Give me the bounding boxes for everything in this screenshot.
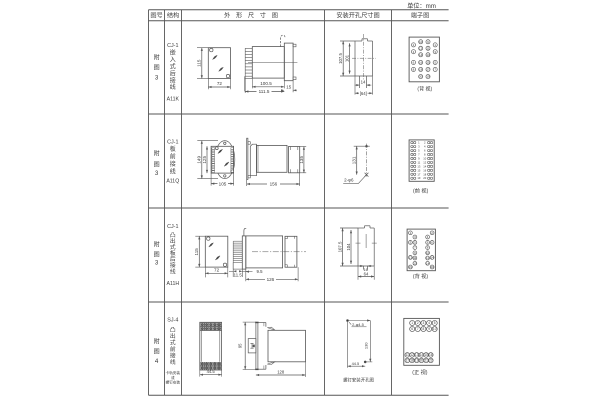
- svg-text:凸: 凸: [170, 232, 176, 239]
- svg-text:接: 接: [170, 352, 176, 360]
- svg-text:115: 115: [197, 59, 202, 67]
- svg-text:单位：mm: 单位：mm: [407, 2, 436, 10]
- svg-text:18: 18: [423, 172, 426, 176]
- svg-text:线: 线: [170, 168, 176, 176]
- svg-text:17: 17: [406, 359, 410, 363]
- svg-text:15: 15: [426, 61, 430, 65]
- svg-text:2-φ6: 2-φ6: [344, 178, 354, 183]
- svg-text:12: 12: [426, 256, 430, 260]
- svg-text:111.5: 111.5: [259, 89, 270, 94]
- svg-text:13: 13: [413, 261, 417, 265]
- svg-text:107.5: 107.5: [338, 241, 343, 252]
- svg-text:9: 9: [428, 327, 430, 331]
- svg-text:72: 72: [217, 81, 223, 86]
- svg-text:18: 18: [419, 68, 423, 72]
- svg-text:10: 10: [419, 40, 423, 44]
- svg-text:126: 126: [267, 277, 275, 282]
- svg-text:20: 20: [430, 265, 434, 269]
- svg-text:螺钉安装开孔图: 螺钉安装开孔图: [343, 377, 374, 384]
- svg-text:附: 附: [154, 150, 160, 158]
- svg-text:16: 16: [429, 353, 433, 357]
- svg-text:入: 入: [170, 57, 176, 64]
- svg-text:19: 19: [409, 265, 413, 269]
- svg-text:(背 视): (背 视): [417, 86, 432, 93]
- svg-text:135: 135: [299, 156, 304, 164]
- svg-text:64: 64: [364, 272, 369, 277]
- svg-text:13: 13: [426, 53, 430, 57]
- svg-text:线: 线: [170, 83, 176, 91]
- svg-text:线: 线: [170, 267, 176, 275]
- svg-text:4: 4: [155, 358, 159, 365]
- svg-text:附: 附: [154, 54, 160, 62]
- svg-text:13: 13: [409, 255, 413, 259]
- svg-text:104: 104: [346, 243, 351, 251]
- svg-text:10: 10: [423, 156, 426, 160]
- svg-text:21: 21: [424, 359, 428, 363]
- svg-text:2: 2: [417, 321, 419, 325]
- svg-text:11: 11: [418, 160, 421, 164]
- svg-text:14: 14: [423, 164, 426, 168]
- svg-text:A11H: A11H: [167, 281, 180, 287]
- svg-text:101: 101: [345, 54, 350, 62]
- svg-text:16: 16: [419, 61, 423, 65]
- svg-text:15: 15: [286, 85, 291, 90]
- svg-text:95: 95: [237, 343, 242, 348]
- svg-text:图: 图: [154, 65, 160, 72]
- svg-text:图: 图: [154, 161, 160, 168]
- svg-text:14: 14: [426, 261, 430, 265]
- svg-text:后: 后: [170, 255, 176, 263]
- svg-text:[64]: [64]: [360, 91, 367, 96]
- svg-text:13: 13: [417, 164, 420, 168]
- svg-text:图: 图: [154, 251, 160, 258]
- svg-text:20: 20: [420, 359, 424, 363]
- svg-text:结构: 结构: [167, 11, 179, 19]
- svg-text:20: 20: [419, 75, 423, 79]
- svg-text:端子图: 端子图: [411, 11, 430, 19]
- svg-text:11: 11: [413, 256, 416, 260]
- svg-text:125: 125: [202, 156, 207, 164]
- svg-text:115: 115: [194, 248, 199, 256]
- svg-text:11: 11: [406, 353, 410, 357]
- svg-text:图: 图: [154, 349, 160, 356]
- svg-text:17: 17: [426, 68, 430, 72]
- svg-text:3: 3: [155, 260, 159, 267]
- svg-text:11: 11: [426, 46, 429, 50]
- svg-text:13: 13: [415, 353, 419, 357]
- svg-text:前: 前: [170, 345, 176, 353]
- svg-text:板: 板: [170, 249, 176, 257]
- svg-text:16: 16: [423, 168, 426, 172]
- svg-text:5: 5: [434, 321, 436, 325]
- svg-text:44.5: 44.5: [207, 369, 216, 374]
- svg-text:卡轨安装: 卡轨安装: [166, 370, 181, 375]
- svg-text:式: 式: [170, 63, 176, 71]
- svg-text:44.5: 44.5: [352, 361, 360, 366]
- svg-text:CJ-1: CJ-1: [167, 43, 178, 49]
- svg-text:8: 8: [423, 327, 425, 331]
- svg-text:安装开孔尺寸图: 安装开孔尺寸图: [336, 11, 379, 19]
- svg-text:A11K: A11K: [167, 97, 180, 103]
- svg-text:12: 12: [423, 160, 426, 164]
- svg-text:7: 7: [417, 327, 419, 331]
- svg-text:附: 附: [154, 338, 160, 346]
- svg-text:14: 14: [361, 80, 366, 85]
- svg-text:式: 式: [170, 339, 176, 347]
- svg-text:14: 14: [430, 255, 434, 259]
- svg-text:9.5: 9.5: [257, 269, 264, 274]
- svg-text:3: 3: [423, 321, 425, 325]
- svg-text:外 形 尺 寸 图: 外 形 尺 寸 图: [224, 11, 280, 19]
- svg-text:1: 1: [411, 321, 413, 325]
- svg-text:18: 18: [410, 359, 414, 363]
- svg-text:后: 后: [170, 70, 176, 78]
- svg-text:3: 3: [155, 74, 159, 81]
- svg-text:CJ-1: CJ-1: [167, 140, 178, 146]
- svg-text:6: 6: [411, 327, 413, 331]
- svg-text:100.5: 100.5: [260, 81, 272, 86]
- svg-text:出: 出: [170, 332, 176, 340]
- svg-text:156: 156: [270, 182, 278, 187]
- svg-text:128: 128: [277, 369, 285, 374]
- svg-text:4: 4: [428, 321, 430, 325]
- svg-text:式: 式: [170, 243, 176, 251]
- svg-text:20: 20: [423, 176, 426, 180]
- svg-text:10: 10: [433, 327, 437, 331]
- svg-text:嵌: 嵌: [170, 50, 176, 57]
- svg-text:CJ-1: CJ-1: [167, 224, 178, 230]
- svg-text:107.5: 107.5: [338, 53, 343, 64]
- svg-text:或: 或: [171, 375, 175, 380]
- svg-text:出: 出: [170, 237, 176, 245]
- svg-text:(前 视): (前 视): [413, 187, 429, 195]
- svg-text:前: 前: [170, 153, 176, 161]
- svg-text:11.5: 11.5: [234, 272, 243, 277]
- svg-text:22: 22: [429, 359, 433, 363]
- svg-text:17: 17: [417, 172, 420, 176]
- svg-text:72: 72: [214, 268, 220, 273]
- svg-text:14: 14: [420, 353, 424, 357]
- svg-text:SJ-4: SJ-4: [167, 318, 178, 324]
- svg-text:131: 131: [352, 156, 357, 164]
- svg-text:19: 19: [415, 359, 419, 363]
- svg-text:(正 视): (正 视): [412, 368, 428, 376]
- svg-text:19: 19: [417, 176, 420, 180]
- svg-text:130: 130: [363, 342, 368, 349]
- svg-text:螺钉安装: 螺钉安装: [166, 379, 181, 384]
- svg-text:接: 接: [170, 76, 176, 84]
- svg-text:接: 接: [170, 261, 176, 269]
- svg-text:105: 105: [219, 181, 227, 186]
- svg-text:14: 14: [419, 53, 423, 57]
- svg-text:图号: 图号: [150, 12, 162, 19]
- svg-text:12: 12: [410, 353, 414, 357]
- svg-text:附: 附: [154, 241, 160, 249]
- svg-text:线: 线: [170, 358, 176, 366]
- svg-text:19: 19: [426, 75, 430, 79]
- svg-text:(背 视): (背 视): [413, 272, 429, 280]
- svg-text:凸: 凸: [170, 326, 176, 333]
- svg-text:接: 接: [170, 160, 176, 168]
- svg-text:12: 12: [419, 46, 423, 50]
- svg-text:2-φ4.5: 2-φ4.5: [352, 322, 364, 327]
- svg-text:10: 10: [426, 251, 430, 255]
- svg-text:15: 15: [424, 353, 428, 357]
- svg-text:3: 3: [155, 170, 159, 177]
- svg-text:板: 板: [170, 145, 176, 153]
- svg-text:A11Q: A11Q: [166, 178, 179, 184]
- svg-text:15: 15: [417, 168, 420, 172]
